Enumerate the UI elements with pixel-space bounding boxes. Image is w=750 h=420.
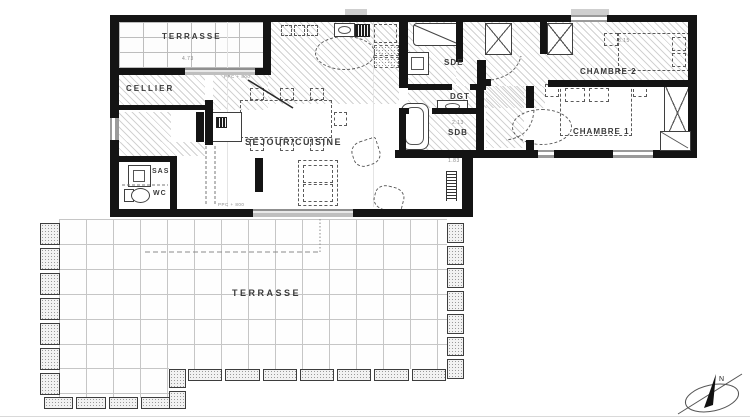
duct-grid <box>216 117 227 128</box>
railing-block <box>40 223 60 245</box>
terrasse-bottom-sliding-door <box>253 209 353 217</box>
room-label-dgt: DGT <box>450 92 470 101</box>
wall-chambre2-left <box>540 22 547 54</box>
kitchen-counter-unit <box>307 25 318 36</box>
chambre2-pillow <box>672 53 686 67</box>
railing-bottom-right <box>188 369 446 381</box>
wall-sejour-right <box>462 150 473 217</box>
compass-north: N <box>678 374 742 416</box>
wall-cellier-right <box>205 100 213 145</box>
compass-needle <box>704 374 716 408</box>
railing-block <box>169 391 186 410</box>
railing-block <box>447 314 464 334</box>
sofa-cushion <box>303 165 333 183</box>
cellier-closet-hatch <box>119 112 171 142</box>
exterior-sill <box>571 9 609 15</box>
wall-closet <box>196 112 204 142</box>
dim-sdb-width: 2.13 <box>452 120 464 126</box>
wall-left <box>110 15 119 217</box>
cellier-window <box>110 118 119 140</box>
technical-duct <box>212 112 242 142</box>
dim-chambre2-bed: 3.15 <box>618 38 630 44</box>
railing-block <box>412 369 446 381</box>
kitchen-fridge <box>374 24 397 43</box>
wall-terrasse-bottom <box>110 68 185 75</box>
sde-washbasin <box>406 52 429 75</box>
dining-table <box>240 100 332 138</box>
radiator <box>446 171 457 201</box>
dim-terrasse-top: 4.73 <box>182 56 194 62</box>
wall-sde-wardrobe <box>456 22 463 62</box>
chambre1-small-window <box>538 150 554 158</box>
railing-block <box>447 359 464 379</box>
chambre2-nightstand <box>604 33 618 46</box>
railing-block <box>374 369 408 381</box>
wall-terrasse-corner <box>255 68 271 75</box>
railing-block <box>169 369 186 388</box>
room-label-sas: SAS <box>152 168 169 175</box>
basin-bowl <box>411 57 424 70</box>
kitchen-worktop <box>374 45 399 56</box>
railing-block <box>40 373 60 395</box>
dining-chair <box>280 88 294 100</box>
room-label-terrasse-top: TERRASSE <box>162 32 222 41</box>
hall-hatch <box>119 142 205 156</box>
terrasse-bottom-tiles-ext <box>59 368 169 398</box>
railing-block <box>263 369 297 381</box>
wall-cellier-bottom <box>119 105 205 110</box>
room-label-sejour-cuisine: SEJOUR/CUISINE <box>245 137 342 147</box>
railing-block <box>188 369 222 381</box>
sde-shower <box>413 23 460 46</box>
kitchen-counter-unit <box>281 25 292 36</box>
chambre1-pillow <box>565 88 585 102</box>
exterior-sill <box>345 9 367 15</box>
railing-right <box>447 223 464 379</box>
railing-corner-post <box>169 369 186 409</box>
chambre2-window <box>571 15 607 22</box>
kitchen-round-table <box>315 36 375 70</box>
floor-plan: TERRASSE 4.73 CELLIER SAS WC SEJOUR/CUIS… <box>0 0 750 420</box>
room-label-wc: WC <box>153 190 167 197</box>
railing-bottom-left <box>44 397 170 409</box>
chambre2-wardrobe <box>547 23 573 55</box>
railing-block <box>447 291 464 311</box>
railing-block <box>40 273 60 295</box>
dining-chair <box>250 88 264 100</box>
railing-block <box>109 397 138 409</box>
room-label-cellier: CELLIER <box>126 84 174 93</box>
wall-sdb-right <box>476 84 484 150</box>
room-label-terrasse-bottom: TERRASSE <box>232 288 301 298</box>
railing-block <box>225 369 259 381</box>
compass-north-label: N <box>719 376 724 383</box>
wall-sas-right <box>170 156 177 209</box>
chambre2-pillow <box>672 37 686 51</box>
railing-block <box>76 397 105 409</box>
wall-chambre2-bottom <box>548 80 697 87</box>
wall-sdb-bottom <box>395 150 473 158</box>
wall-sas-top <box>119 156 172 162</box>
railing-block <box>44 397 73 409</box>
wall-chambre1-left-a <box>526 86 534 108</box>
wall-entry-stub <box>255 158 263 192</box>
railing-left <box>40 223 60 395</box>
wall-top <box>110 15 697 22</box>
dining-chair <box>334 112 347 126</box>
railing-block <box>40 298 60 320</box>
chambre1-window <box>613 150 653 158</box>
compass-axis-line <box>678 374 742 414</box>
room-label-chambre2: CHAMBRE 2 <box>580 67 637 76</box>
kitchen-counter-unit <box>294 25 305 36</box>
wc-toilet <box>131 188 150 203</box>
railing-block <box>447 268 464 288</box>
wall-sdb-top-b <box>432 108 482 114</box>
railing-block <box>447 223 464 243</box>
wall-kitchen-sde <box>399 22 408 88</box>
sheet-bottom-line <box>0 416 750 417</box>
wall-sdb-left <box>399 108 406 150</box>
railing-block <box>40 248 60 270</box>
sas-fixture-inner <box>133 170 145 182</box>
railing-block <box>141 397 170 409</box>
railing-block <box>447 337 464 357</box>
room-label-sde: SDE <box>444 58 463 67</box>
wall-chambre1-left-b <box>526 140 534 152</box>
room-label-chambre1: CHAMBRE 1 <box>573 127 630 136</box>
dim-sdb-below: 1.83 <box>448 158 460 164</box>
door-note-bottom: PPC + 800 <box>218 202 244 207</box>
kitchen-stove <box>355 24 370 37</box>
railing-block <box>40 323 60 345</box>
door-note-top: PPC + 800 <box>224 74 250 79</box>
wall-sde-bottom <box>408 84 452 90</box>
railing-block <box>447 246 464 266</box>
chambre2-wardrobe <box>485 23 512 55</box>
railing-block <box>40 348 60 370</box>
sas-fixture <box>128 165 151 187</box>
sofa-cushion <box>303 184 333 202</box>
room-label-sdb: SDB <box>448 128 468 137</box>
railing-block <box>337 369 371 381</box>
wall-chambre1-bottom <box>470 150 697 158</box>
kitchen-sink <box>334 23 355 37</box>
armchair <box>349 136 384 169</box>
sink-bowl <box>338 26 351 34</box>
dining-chair <box>310 88 324 100</box>
chambre1-pillow <box>589 88 609 102</box>
compass-ellipse <box>683 380 741 417</box>
kitchen-worktop <box>374 57 399 68</box>
wall-terrasse-right <box>263 15 271 75</box>
chambre1-turning-circle <box>512 109 572 145</box>
railing-block <box>300 369 334 381</box>
corner-cabinet <box>660 131 691 151</box>
